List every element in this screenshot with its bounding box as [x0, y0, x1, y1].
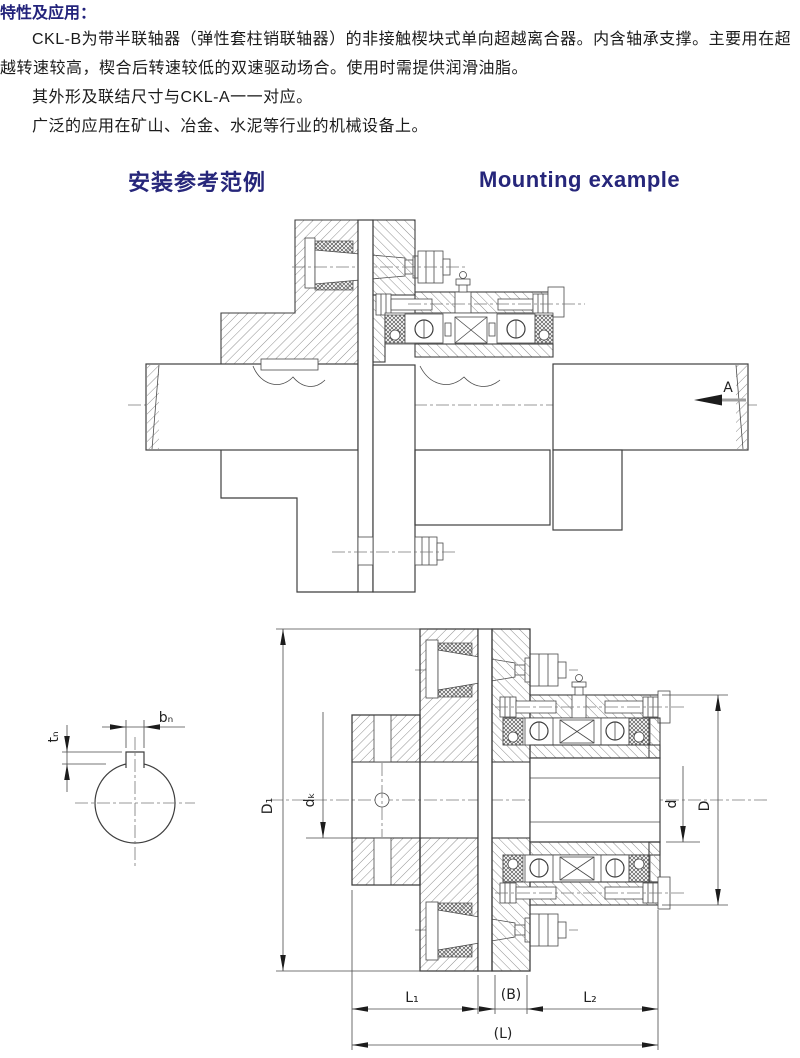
- bolt-shank: [391, 299, 432, 310]
- end-cap: [658, 877, 670, 909]
- bolt-shank: [498, 299, 533, 310]
- taper-pin: [438, 910, 515, 950]
- elastic-sleeve: [438, 681, 472, 697]
- end-cap: [658, 691, 670, 723]
- driven-sleeve: [530, 758, 660, 842]
- bearing-block-outline: [553, 450, 622, 530]
- washer: [413, 256, 418, 278]
- flange-plate-right-section: [373, 220, 415, 295]
- left-shaft: [146, 364, 358, 450]
- left-hub-section: [221, 220, 465, 386]
- ball-bearing: [601, 855, 629, 882]
- grease-nipple: [572, 675, 586, 719]
- taper-pin: [315, 250, 405, 284]
- bolt-head: [500, 697, 516, 717]
- grease-nipple: [455, 272, 471, 314]
- washer: [525, 918, 530, 942]
- dim-label-D1: D₁: [260, 798, 276, 814]
- ball-bearing: [601, 718, 629, 745]
- flange-plate-right: [492, 629, 530, 971]
- lower-outline: [221, 450, 550, 592]
- shaft-section-circle: [95, 763, 175, 843]
- bolt-head: [643, 697, 658, 717]
- pin-nut: [418, 251, 443, 283]
- bolt-head: [643, 883, 658, 903]
- washer: [525, 658, 530, 682]
- dimensions: D₁ dₖ d D: [260, 629, 728, 1050]
- seal: [629, 855, 649, 882]
- dimension-diagram: D₁ dₖ d D: [260, 629, 770, 1050]
- key: [261, 359, 318, 370]
- clutch-housing-section: [376, 272, 585, 387]
- mounting-example-diagram: A: [128, 220, 758, 592]
- view-label: A: [723, 380, 733, 396]
- dim-label-dk: dₖ: [302, 793, 318, 808]
- left-hub: [352, 715, 420, 885]
- dim-label-d: d: [664, 800, 680, 809]
- technical-drawing: A: [0, 0, 800, 1058]
- sprag-element: [455, 317, 487, 343]
- seal: [503, 718, 523, 745]
- bearing-row: [385, 313, 553, 344]
- lower-nut: [415, 537, 437, 565]
- elastic-sleeve: [438, 903, 472, 919]
- arrowhead: [694, 395, 722, 406]
- dim-label-bn: bₙ: [159, 710, 173, 726]
- section-heading-zh: 安装参考范例: [128, 165, 266, 197]
- bearing-row-top: [503, 718, 660, 758]
- hub-relief-curve: [420, 366, 500, 386]
- seal: [629, 718, 649, 745]
- intro-paragraph-2: 其外形及联结尺寸与CKL-A一一对应。: [0, 83, 800, 112]
- lower-washer: [437, 543, 443, 560]
- keyway-detail: bₙ tₙ: [46, 710, 195, 868]
- flange-plate-left: [358, 220, 373, 592]
- intro-paragraph-1: CKL-B为带半联轴器（弹性套柱销联轴器）的非接触楔块式单向超越离合器。内含轴承…: [0, 25, 800, 83]
- intro-paragraph-3: 广泛的应用在矿山、冶金、水泥等行业的机械设备上。: [0, 112, 800, 141]
- bolt-shank: [605, 887, 643, 899]
- dim-label-D: D: [697, 801, 713, 812]
- flange-plate-right-lower: [373, 365, 415, 592]
- hub-relief-curve: [253, 366, 325, 386]
- ball-bearing: [525, 855, 553, 882]
- view-arrow-A: A: [694, 380, 746, 406]
- dim-label-L2: L₂: [583, 990, 596, 1006]
- bolt-head: [500, 883, 516, 903]
- dim-label-L: (L): [494, 1026, 513, 1042]
- flange-body: [352, 629, 566, 971]
- seal: [503, 855, 523, 882]
- bolt-shank: [516, 887, 556, 899]
- ball-bearing: [525, 718, 553, 745]
- section-heading-en: Mounting example: [479, 167, 680, 193]
- dim-label-L1: L₁: [405, 990, 418, 1006]
- pin-nut: [530, 654, 558, 686]
- right-shaft: [553, 364, 748, 530]
- bolt-head: [533, 294, 548, 315]
- seal: [385, 315, 405, 343]
- clutch-housing: [495, 675, 685, 910]
- dim-label-B: (B): [501, 987, 522, 1003]
- ball-bearing: [497, 314, 535, 343]
- housing-flange-sliver: [373, 295, 385, 362]
- page-title: 特性及应用：: [0, 3, 800, 25]
- elastic-sleeve: [438, 941, 472, 957]
- bolt-shank: [605, 701, 643, 713]
- keyway: [126, 752, 144, 768]
- ball-bearing: [405, 314, 443, 343]
- bolt-shank: [516, 701, 556, 713]
- hub-hole: [375, 793, 389, 807]
- bolt-head: [376, 294, 391, 315]
- sprag-element: [560, 857, 594, 880]
- sprag-element: [560, 720, 594, 743]
- taper-pin: [438, 650, 515, 690]
- flange-plate-left: [478, 629, 492, 971]
- seal: [535, 315, 553, 343]
- pin-nut: [530, 914, 558, 946]
- dim-label-tn: tₙ: [46, 731, 62, 742]
- end-cap: [548, 287, 564, 317]
- elastic-sleeve: [315, 241, 353, 254]
- elastic-sleeve: [315, 277, 353, 290]
- intro-text-block: 特性及应用： CKL-B为带半联轴器（弹性套柱销联轴器）的非接触楔块式单向超越离…: [0, 0, 800, 141]
- elastic-sleeve: [438, 643, 472, 659]
- bearing-row-bottom: [503, 842, 660, 882]
